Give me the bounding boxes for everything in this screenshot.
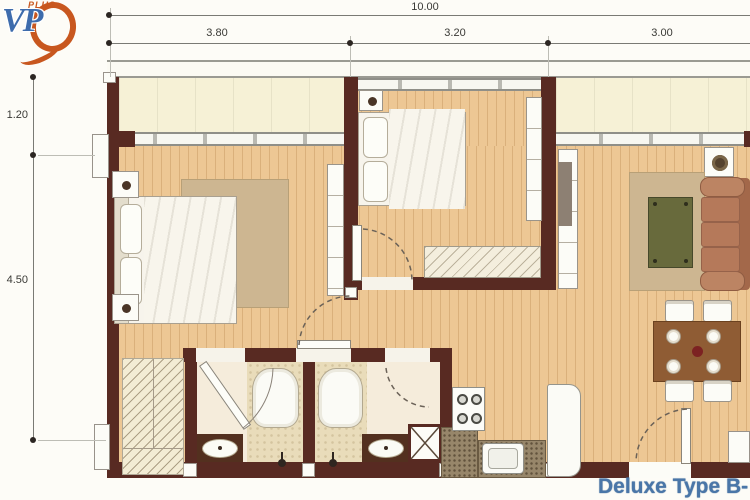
dimension-tick [106,40,112,46]
doorway-bathroom1 [196,348,245,362]
plate-icon [706,329,721,344]
dining-chair [703,300,732,322]
sofa-arm-bottom [700,271,745,291]
plate-icon [666,329,681,344]
window-wall-master-bedroom [107,132,344,146]
plate-icon [706,359,721,374]
logo-plus-text: PLUS [28,0,56,10]
bathroom2-bathtub [318,368,363,428]
plan-title: Deluxe Type B- [598,475,750,499]
master-bed-pillow-1 [120,204,142,254]
dimension-line-left [33,77,34,440]
faucet-icon [384,446,388,450]
burner-icon [457,394,468,405]
bedroom2-wardrobe [424,246,541,278]
dimension-tick [545,40,551,46]
table-leg [653,259,657,263]
burner-icon [471,394,482,405]
dining-chair [665,380,694,402]
refrigerator [547,384,581,477]
dimension-line-segments [110,43,750,44]
burner-icon [471,413,482,424]
ac-ledge-bottom [94,424,110,470]
doorway-bathroom2 [385,348,430,362]
bathroom1-vanity [197,434,243,462]
table-leg [684,259,688,263]
dining-chair [703,380,732,402]
bedroom2-duvet [389,109,465,209]
master-nightstand-bottom [112,294,139,321]
master-bedroom-door [297,340,351,349]
dimension-tick [347,40,353,46]
wall-bathrooms-divider [303,362,315,462]
lamp-icon [368,97,377,106]
bedroom2-pillow-1 [363,117,388,158]
sofa-cushion [701,222,740,247]
bedroom2-desk [526,97,542,221]
table-leg [653,202,657,206]
plate-icon [666,359,681,374]
wall-window-pier-left [119,131,135,147]
window-wall-living-room [553,132,750,146]
wall-cap-junction-1 [183,463,197,477]
sofa [699,177,750,291]
plant-icon [712,155,728,171]
wall-window-pier-right [744,131,750,147]
balcony-right-floor [556,78,750,132]
kitchen-sink [482,443,524,474]
master-wardrobe [327,164,344,296]
dimension-segment-1: 3.80 [182,27,252,39]
master-bed-duvet [144,197,236,323]
coffee-table [648,197,693,268]
bathroom2-vanity [362,434,410,462]
dimension-segment-2: 3.20 [420,27,490,39]
dining-table [653,321,741,382]
dimension-overall-width: 10.00 [390,1,460,13]
closet-divider [153,359,154,448]
balcony-parapet [107,60,750,78]
wall-cap-divider-end [345,287,357,298]
sink-basin [488,448,518,469]
dimension-left-1: 1.20 [0,109,28,121]
bathroom1-bathtub [252,368,299,428]
wall-bedroom2-living-divider [541,77,556,290]
extension-line [38,440,106,441]
balcony-left-floor [119,78,344,132]
corner-side-table [704,147,734,177]
doorway-master-bedroom [296,348,351,362]
ac-ledge-top [92,134,109,178]
plumbing-vent-icon [278,459,286,467]
burner-icon [457,413,468,424]
dimension-line-overall [110,15,750,16]
developer-logo: VP PLUS [0,0,105,75]
dining-chair [665,300,694,322]
dimension-left-2: 4.50 [0,274,28,286]
sofa-arm-top [700,177,745,197]
floor-plan-canvas: 10.00 3.80 3.20 3.00 1.20 4.50 VP PLUS D… [0,0,750,500]
lamp-icon [122,181,131,190]
master-nightstand-top [112,171,139,198]
bedroom2-nightstand [359,90,383,111]
table-centerpiece [692,346,703,357]
walk-in-closet [122,358,184,475]
lamp-icon [122,304,131,313]
bedroom2-pillow-2 [363,161,388,202]
dimension-tick [30,437,36,443]
sofa-cushion [701,197,740,222]
bedroom2-door [352,225,362,281]
dimension-tick [30,152,36,158]
tv-screen [558,162,572,226]
bedroom2-bed [358,112,466,206]
wall-cap-junction-2 [302,463,315,477]
entry-cabinet [728,431,750,463]
extension-line [38,155,95,156]
faucet-icon [218,446,222,450]
dimension-segment-3: 3.00 [627,27,697,39]
closet-divider [123,448,183,449]
dimension-tick [106,12,112,18]
service-shaft [408,424,442,462]
table-leg [684,202,688,206]
plumbing-vent-icon [329,459,337,467]
sofa-cushion [701,247,740,272]
wall-bathroom1-west [185,362,197,464]
entrance-door [681,408,691,464]
stove [452,387,485,431]
kitchen-counter-left [441,427,478,478]
doorway-bedroom2 [362,277,413,290]
